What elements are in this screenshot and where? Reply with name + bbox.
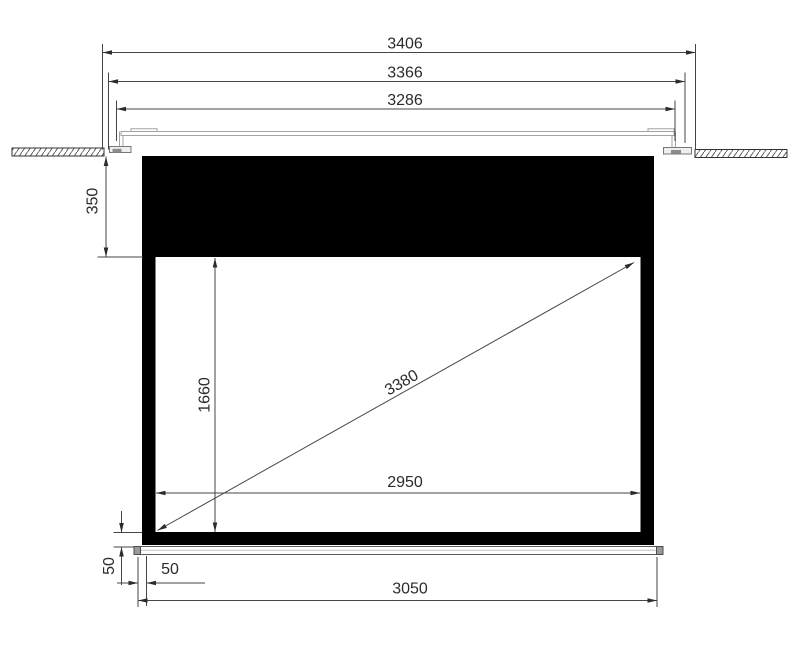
dimension-viewing-height: 1660: [197, 258, 218, 532]
casing: [110, 129, 692, 154]
casing-top-profile: [121, 132, 674, 136]
dim-label-1660: 1660: [197, 377, 214, 413]
ceiling-left-section: [12, 148, 104, 156]
casing-left-flange-core: [113, 149, 122, 153]
bottom-bar-right-cap: [657, 547, 664, 555]
dim-label-3050: 3050: [392, 581, 428, 598]
bottom-bar: [134, 547, 663, 555]
dim-label-2950: 2950: [387, 474, 423, 491]
casing-right-flange-core: [671, 150, 681, 154]
dim-label-3286: 3286: [387, 92, 423, 109]
dim-label-50-horizontal: 50: [161, 561, 179, 578]
screen-dimension-drawing: 3406 3366 3286 350 1660 3380: [0, 0, 800, 650]
dim-label-3406: 3406: [387, 36, 423, 53]
technical-drawing-page: 3406 3366 3286 350 1660 3380: [0, 0, 800, 650]
dim-label-350: 350: [85, 188, 102, 215]
dimension-top-drop: 350: [85, 157, 143, 258]
dimension-bar-width: 3050: [138, 557, 657, 607]
dim-label-3380: 3380: [382, 367, 421, 399]
dimension-diagonal: 3380: [156, 260, 635, 532]
bottom-bar-left-cap: [134, 547, 141, 555]
dimension-bar-offset-horizontal: 50: [117, 556, 205, 606]
dimensions-layer: 3406 3366 3286 350 1660 3380: [85, 36, 696, 608]
dim-label-50-vertical: 50: [101, 557, 118, 575]
ceiling-right-section: [695, 150, 787, 158]
dimension-viewing-width: 2950: [156, 474, 640, 495]
dim-label-3366: 3366: [387, 65, 423, 82]
